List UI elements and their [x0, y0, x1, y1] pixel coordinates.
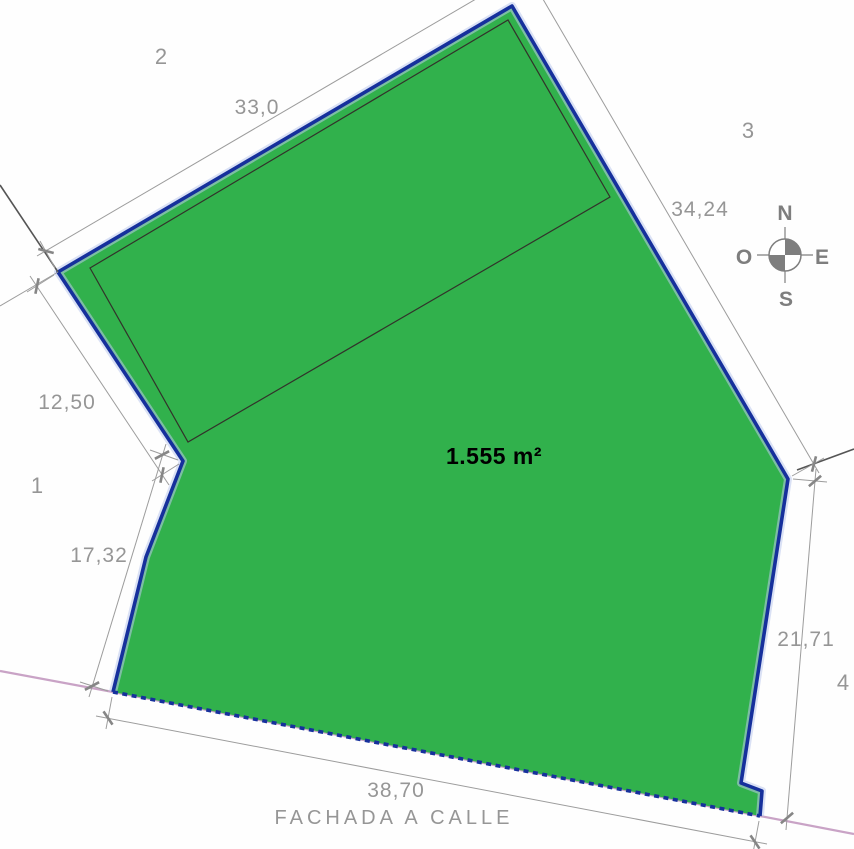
- compass-west-label: O: [736, 246, 752, 269]
- dim-label-left-lower: 17,32: [70, 544, 128, 567]
- ext-line-b-up: [792, 458, 824, 476]
- street-facade-label: FACHADA A CALLE: [275, 807, 514, 829]
- dim-label-left-upper: 12,50: [38, 391, 96, 414]
- dim-label-right-lower: 21,71: [777, 628, 835, 651]
- site-plan-diagram: 33,0 34,24 12,50 17,32 21,71 38,70 FACHA…: [0, 0, 854, 849]
- ext-line-j-top: [40, 241, 55, 268]
- corner-label-4: 4: [837, 670, 849, 695]
- tick-left-upper-start: [35, 278, 38, 294]
- ext-line-b-right: [793, 479, 827, 482]
- compass-east-label: E: [815, 246, 829, 269]
- dim-label-bottom: 38,70: [367, 779, 425, 802]
- corner-label-1: 1: [31, 473, 43, 498]
- corner-label-3: 3: [742, 118, 754, 143]
- parcel-polygon: [58, 6, 788, 816]
- corner-label-2: 2: [155, 44, 167, 69]
- neighbor-line-right: [797, 449, 854, 470]
- neighbor-line-top-left: [0, 185, 58, 272]
- compass-rose: N O E S: [736, 202, 829, 311]
- tick-left-upper-end: [160, 467, 163, 483]
- parcel-area-label: 1.555 m²: [446, 443, 542, 469]
- compass-ne-quadrant: [785, 239, 801, 255]
- dim-label-right: 34,24: [671, 198, 729, 221]
- compass-sw-quadrant: [769, 255, 785, 271]
- compass-south-label: S: [779, 288, 793, 311]
- compass-north-label: N: [777, 202, 792, 225]
- dim-label-top: 33,0: [235, 96, 280, 119]
- ext-line-j-down: [0, 272, 58, 306]
- site-plan-canvas: 33,0 34,24 12,50 17,32 21,71 38,70 FACHA…: [0, 0, 854, 849]
